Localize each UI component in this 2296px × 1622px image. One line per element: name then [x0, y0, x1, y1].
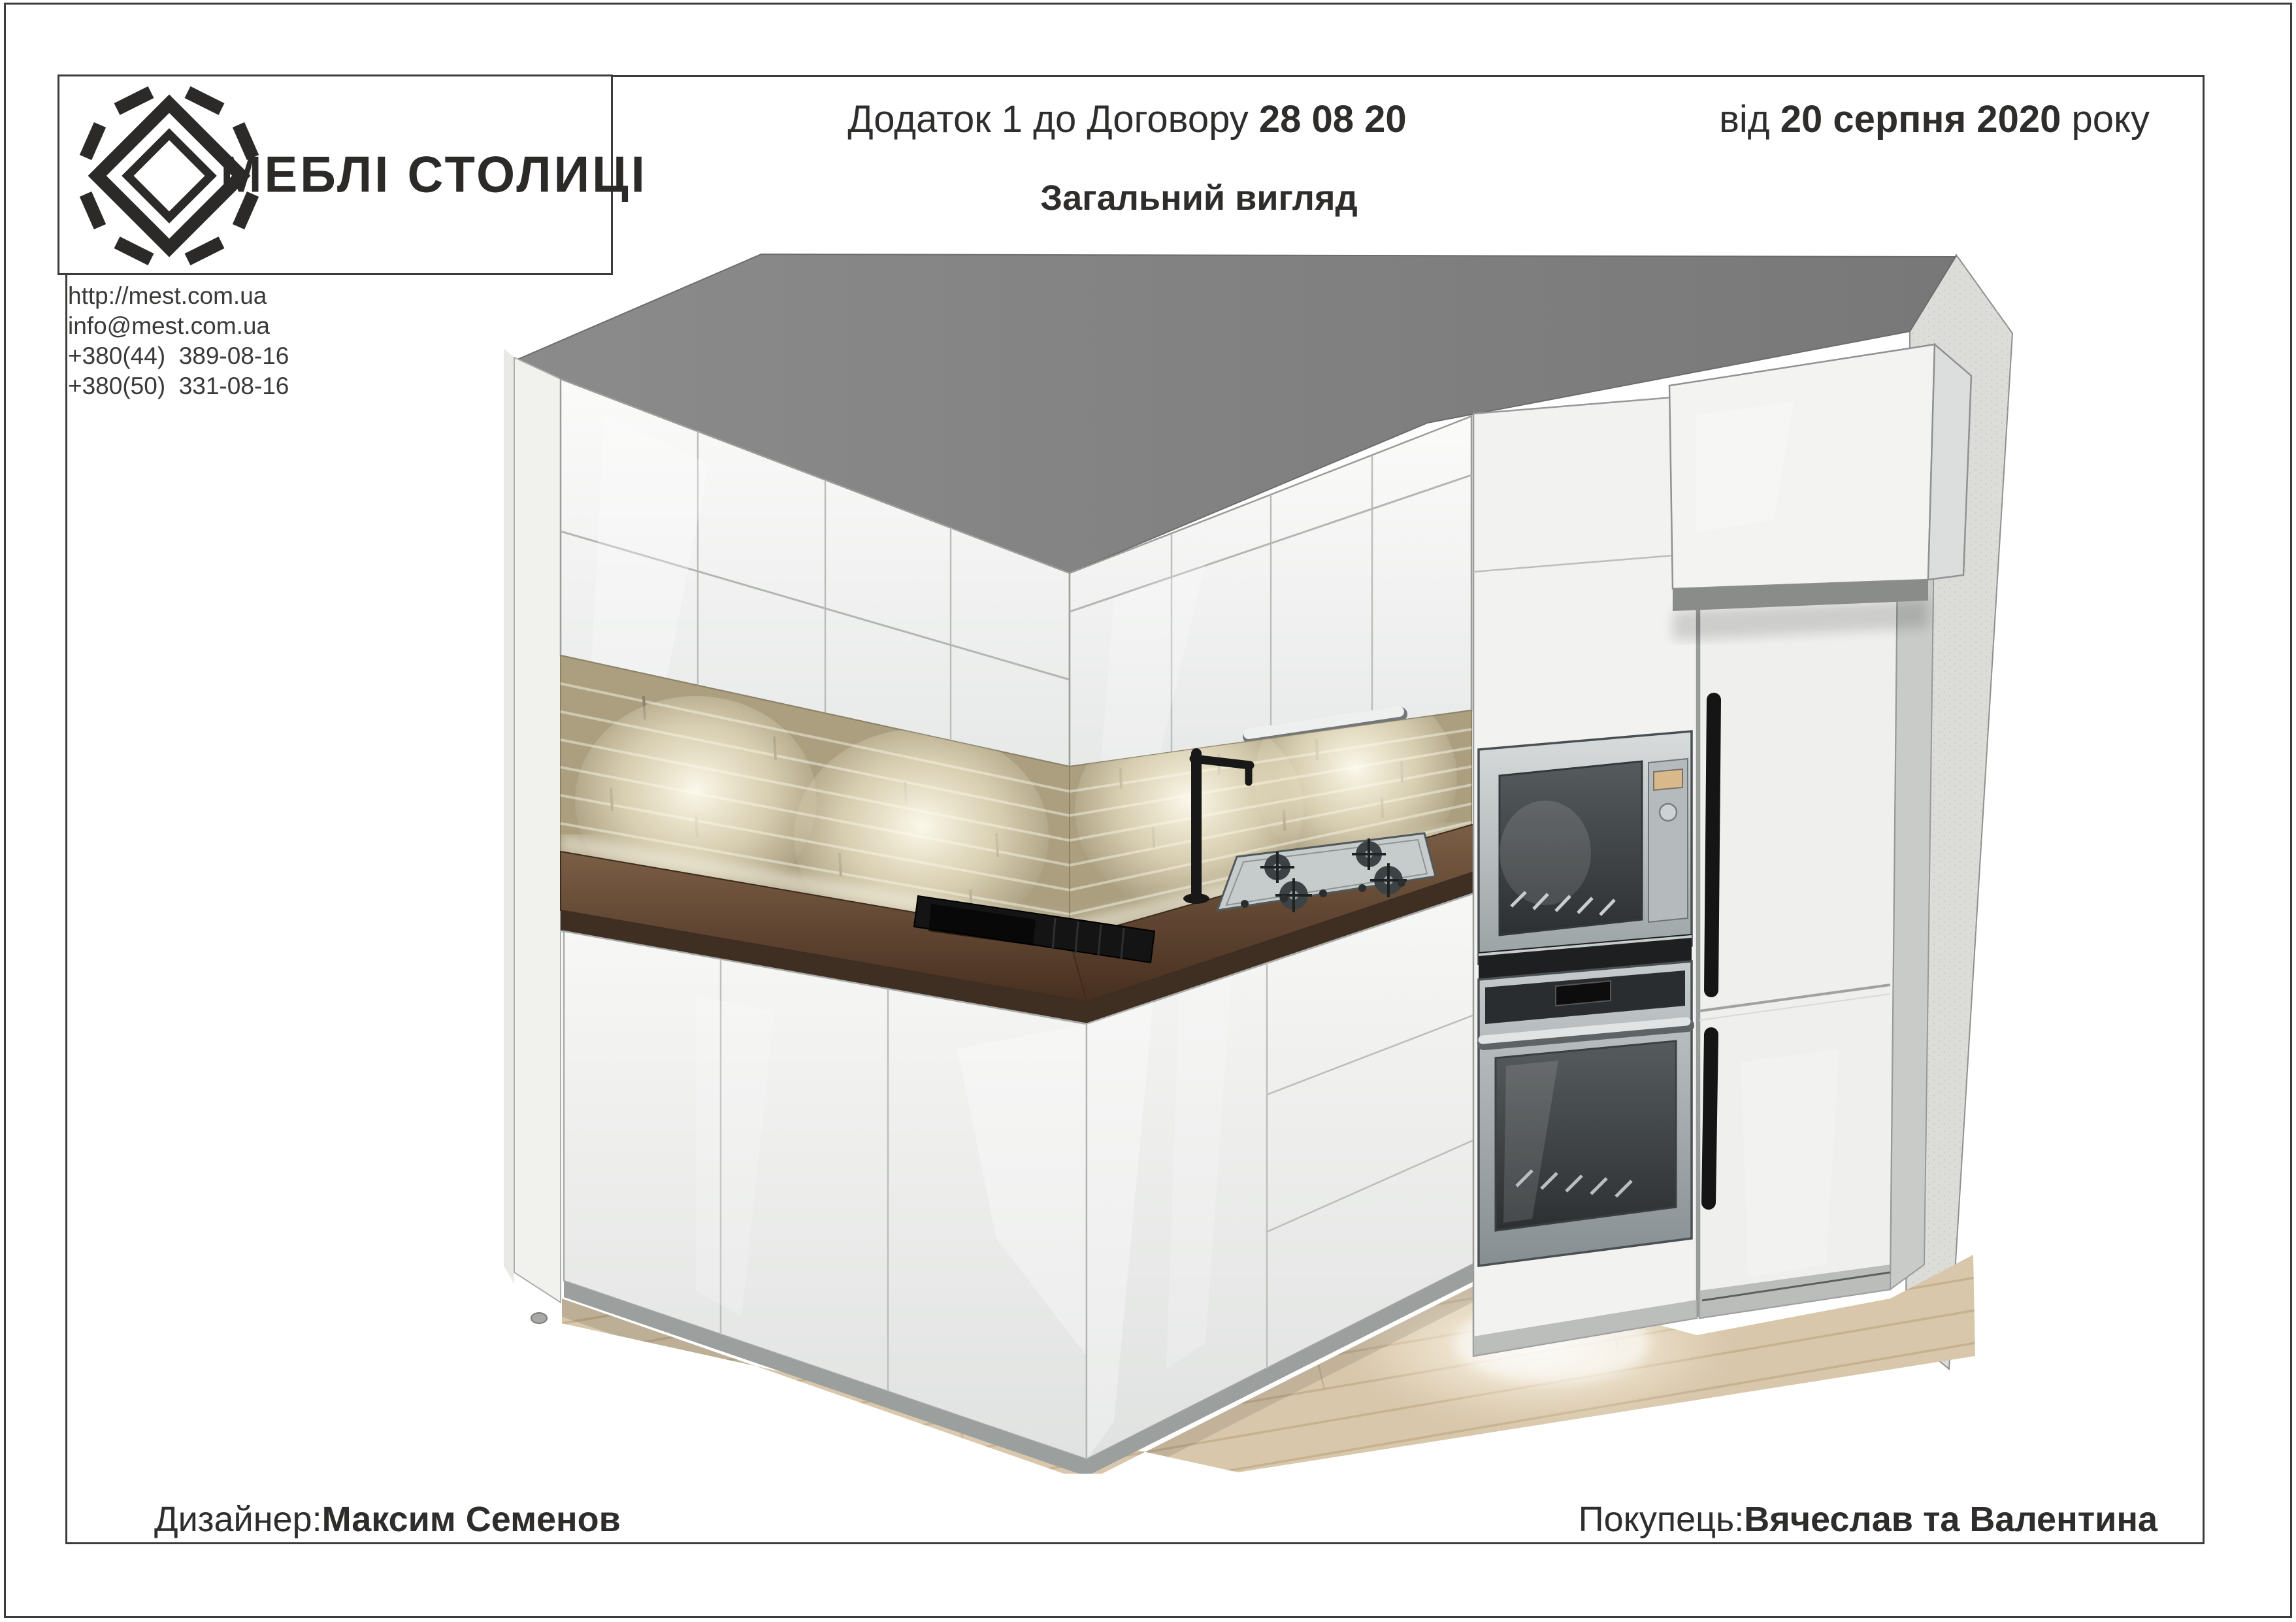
left-wall-edge [504, 348, 514, 1284]
header-date: від 20 серпня 2020 року [1719, 98, 2150, 142]
header-appendix: Додаток 1 до Договору 28 08 20 [751, 98, 1503, 142]
base-cabinets-left [564, 931, 1087, 1474]
header-contract-number: 28 08 20 [1259, 98, 1407, 141]
oven [1479, 961, 1692, 1266]
contact-email: info@mest.com.ua [68, 311, 289, 341]
microwave-display [1654, 769, 1682, 790]
footer-buyer: Покупець:Вячеслав та Валентина [1579, 1499, 2157, 1540]
header-date-value: 20 серпня 2020 [1780, 98, 2061, 141]
microwave-button [1660, 804, 1677, 821]
fridge-handle-upper [1711, 700, 1714, 990]
designer-label: Дизайнер: [154, 1500, 322, 1539]
designer-name: Максим Семенов [322, 1500, 621, 1539]
contact-website: http://mest.com.ua [68, 281, 289, 311]
buyer-name: Вячеслав та Валентина [1744, 1500, 2157, 1539]
cabinet-foot [531, 1313, 547, 1323]
fridge-handle-lower [1709, 1034, 1711, 1202]
footer-designer: Дизайнер:Максим Семенов [154, 1499, 621, 1540]
contact-phone-1: +380(44) 389-08-16 [68, 341, 289, 371]
contact-phone-2: +380(50) 331-08-16 [68, 371, 289, 401]
kitchen-render [500, 245, 2058, 1474]
above-fridge-cabinet [1669, 344, 1971, 640]
document-page: МЕБЛІ СТОЛИЦІ http://mest.com.ua info@me… [0, 0, 2296, 1622]
left-side-panel [514, 357, 561, 1302]
contact-block: http://mest.com.ua info@mest.com.ua +380… [68, 281, 289, 401]
header-appendix-prefix: Додаток 1 до Договору [847, 98, 1258, 141]
buyer-label: Покупець: [1579, 1500, 1744, 1539]
header-date-prefix: від [1719, 98, 1780, 141]
header-date-suffix: року [2061, 98, 2150, 141]
tall-oven-column [1473, 395, 1698, 1356]
microwave [1479, 731, 1692, 964]
page-title: Загальний вигляд [800, 178, 1598, 218]
